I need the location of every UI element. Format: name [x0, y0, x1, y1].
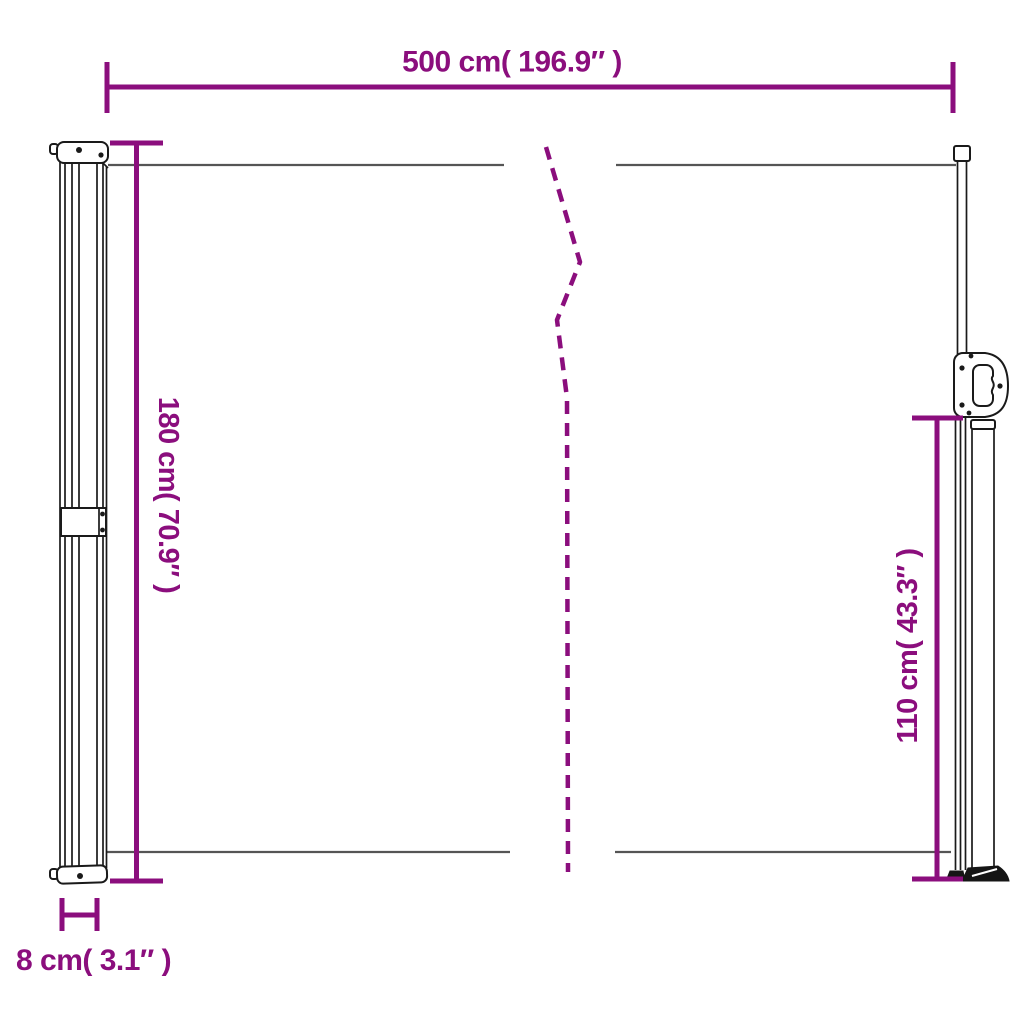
depth-dimension-line	[62, 898, 97, 931]
cassette-housing-drawing	[50, 142, 108, 884]
height-left-dimension-label: 180 cm( 70.9″ )	[151, 397, 183, 594]
depth-dimension-label: 8 cm( 3.1″ )	[16, 944, 171, 977]
cassette-bottom-cap	[50, 865, 107, 884]
support-pole-drawing	[946, 146, 1009, 881]
dimension-diagram: 500 cm( 196.9″ ) 180 cm( 70.9″ ) 110 cm(…	[0, 0, 1024, 1024]
pull-handle	[954, 353, 1008, 417]
fabric-break-dashed-line	[546, 147, 580, 872]
fabric-panel-lines	[107, 165, 956, 852]
height-right-dimension-label: 110 cm( 43.3″ )	[893, 548, 925, 743]
width-dimension-label: 500 cm( 196.9″ )	[402, 46, 622, 79]
cassette-wall-bracket	[61, 508, 106, 536]
pole-top-cap	[954, 146, 970, 161]
